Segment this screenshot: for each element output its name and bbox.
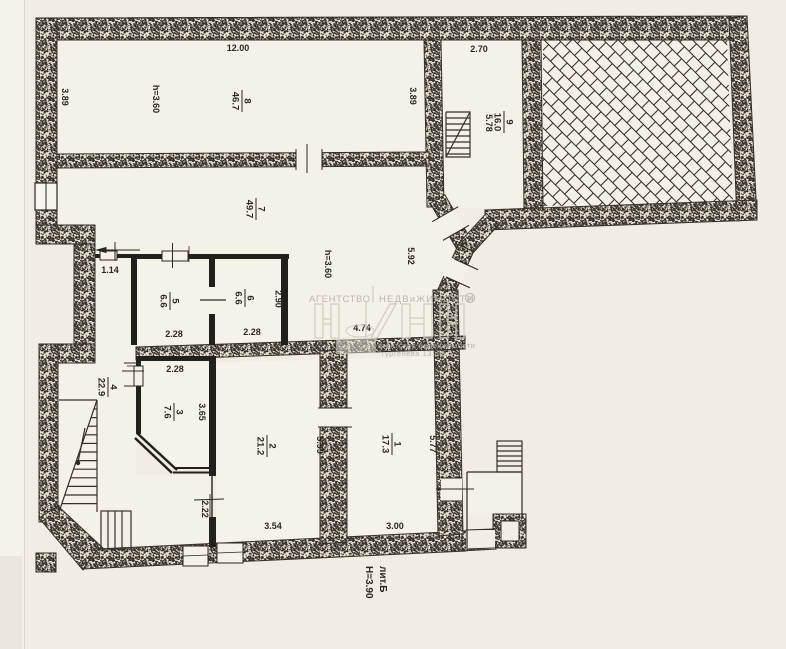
svg-text:5.99: 5.99 [315, 436, 325, 454]
svg-text:2: 2 [267, 443, 278, 448]
svg-text:2.28: 2.28 [166, 364, 184, 374]
svg-text:АГЕНТСТВО: АГЕНТСТВО [309, 294, 371, 305]
svg-text:21.2: 21.2 [255, 437, 266, 456]
svg-text:4.74: 4.74 [353, 323, 371, 333]
svg-text:1: 1 [392, 441, 403, 447]
svg-text:Н=3.90: Н=3.90 [363, 566, 374, 599]
svg-text:2.22: 2.22 [200, 500, 210, 518]
svg-text:6: 6 [245, 295, 256, 300]
svg-text:2.28: 2.28 [165, 329, 183, 339]
svg-text:6.6: 6.6 [233, 291, 244, 304]
svg-text:h=3.60: h=3.60 [151, 85, 161, 113]
svg-text:h=3.60: h=3.60 [323, 250, 333, 278]
svg-text:17.3: 17.3 [380, 435, 391, 454]
svg-text:5.92: 5.92 [406, 247, 416, 265]
svg-text:тургенева 13 оф 2: тургенева 13 оф 2 [381, 349, 453, 358]
svg-text:НЕДВиЖИМОСТИ: НЕДВиЖИМОСТИ [379, 294, 475, 305]
svg-text:3.54: 3.54 [264, 521, 282, 531]
svg-text:5: 5 [170, 298, 181, 304]
svg-text:лит.Б: лит.Б [377, 566, 388, 592]
svg-text:2.90: 2.90 [274, 290, 284, 308]
svg-text:7: 7 [256, 206, 267, 211]
svg-text:5.77: 5.77 [428, 435, 438, 453]
svg-text:7.6: 7.6 [162, 405, 173, 418]
svg-text:3.00: 3.00 [386, 521, 404, 531]
svg-text:49.7: 49.7 [244, 200, 255, 219]
svg-text:2.28: 2.28 [243, 327, 261, 337]
svg-text:16.0: 16.0 [492, 113, 503, 132]
svg-text:1.14: 1.14 [101, 265, 119, 275]
svg-text:3.89: 3.89 [408, 87, 418, 105]
svg-text:2.70: 2.70 [470, 44, 488, 54]
svg-text:22.9: 22.9 [96, 378, 107, 397]
svg-text:3.89: 3.89 [60, 88, 70, 106]
svg-text:9: 9 [504, 119, 515, 124]
svg-text:8: 8 [242, 98, 253, 103]
svg-text:R: R [468, 297, 473, 303]
svg-text:4: 4 [108, 384, 119, 390]
svg-text:3.65: 3.65 [197, 403, 207, 421]
svg-text:6.6: 6.6 [158, 294, 169, 307]
svg-text:46.7: 46.7 [230, 92, 241, 111]
svg-text:12.00: 12.00 [227, 43, 250, 53]
svg-text:3: 3 [174, 409, 185, 414]
